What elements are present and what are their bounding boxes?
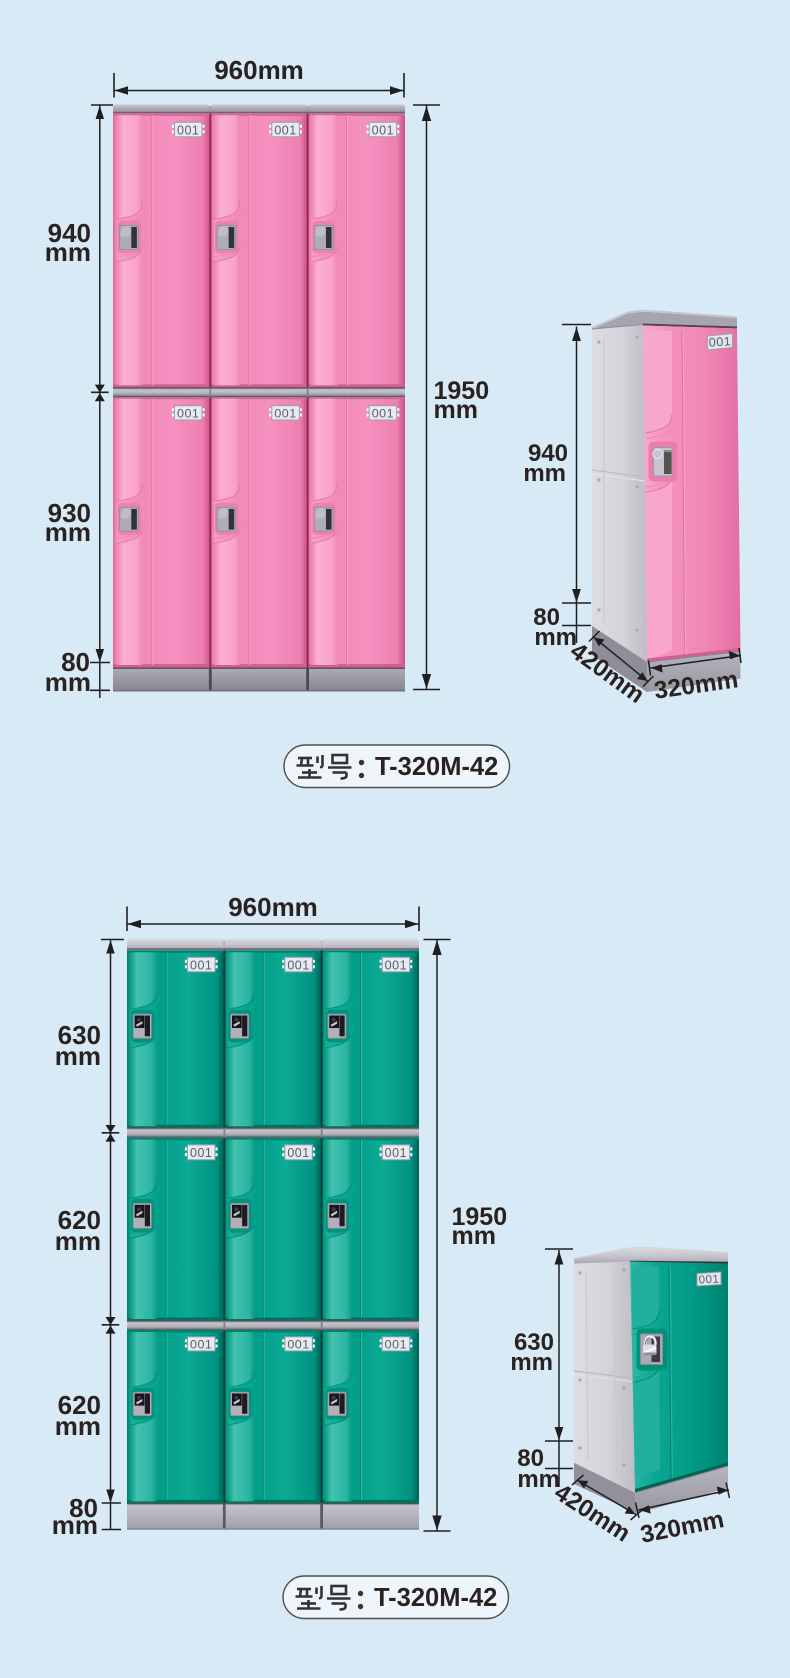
svg-text:mm: mm <box>52 1510 98 1540</box>
svg-text:001: 001 <box>698 1273 719 1286</box>
svg-text:mm: mm <box>55 1226 101 1256</box>
svg-text:960mm: 960mm <box>228 892 318 922</box>
svg-text:T-320M-42: T-320M-42 <box>374 1584 497 1612</box>
svg-text:mm: mm <box>45 237 91 267</box>
svg-text:mm: mm <box>434 396 478 424</box>
svg-text:960mm: 960mm <box>214 55 304 85</box>
svg-text:mm: mm <box>45 667 91 697</box>
svg-text:mm: mm <box>452 1222 496 1250</box>
svg-text:mm: mm <box>510 1349 553 1376</box>
svg-text:mm: mm <box>55 1411 101 1441</box>
svg-text:mm: mm <box>45 517 91 547</box>
svg-text:T-320M-42: T-320M-42 <box>375 753 498 781</box>
svg-text:mm: mm <box>55 1041 101 1071</box>
svg-text:mm: mm <box>534 624 577 651</box>
svg-text:mm: mm <box>517 1466 560 1493</box>
svg-text:mm: mm <box>523 460 566 487</box>
svg-text:001: 001 <box>708 334 731 350</box>
